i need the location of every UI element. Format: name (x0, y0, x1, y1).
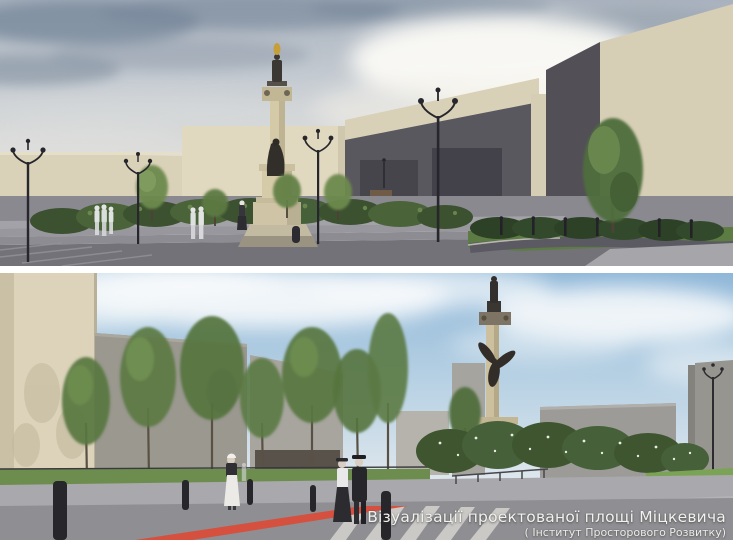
bronze-figure-head (273, 139, 280, 146)
render-top-view-svg (0, 0, 733, 266)
bollard (310, 485, 316, 512)
bollard (532, 216, 536, 235)
bollard (658, 218, 662, 237)
top-statue (272, 60, 282, 82)
visualization-sheet: Візуалізації проектованої площі Міцкевич… (0, 0, 733, 540)
bollard (500, 216, 504, 235)
capital-scroll-right (284, 90, 290, 96)
left-facade-roofline (0, 152, 182, 155)
bollard (292, 226, 300, 243)
distant-figure (242, 463, 246, 481)
caption: Візуалізації проектованої площі Міцкевич… (367, 509, 726, 539)
bollard (690, 219, 694, 238)
capital-scroll-left (264, 90, 270, 96)
gilded-finial (274, 43, 281, 55)
capital-scroll-left (481, 315, 486, 320)
bollard (182, 480, 189, 510)
monument-step-lower (238, 235, 318, 247)
render-top-view (0, 0, 733, 266)
bollard-large (53, 481, 67, 540)
top-statue-head (491, 276, 497, 282)
bollard (564, 217, 568, 236)
bollard (247, 479, 253, 505)
caption-title: Візуалізації проектованої площі Міцкевич… (367, 509, 726, 525)
bollard (596, 217, 600, 236)
caption-credit: ( Інститут Просторового Розвитку) (367, 527, 726, 539)
render-bottom-view (0, 273, 733, 540)
render-bottom-view-svg (0, 273, 733, 540)
left-beige-shade (0, 273, 14, 485)
monument-step-upper (244, 224, 312, 236)
capital-scroll-right (503, 315, 508, 320)
pedestrian-group (94, 204, 113, 236)
top-statue (490, 281, 498, 303)
